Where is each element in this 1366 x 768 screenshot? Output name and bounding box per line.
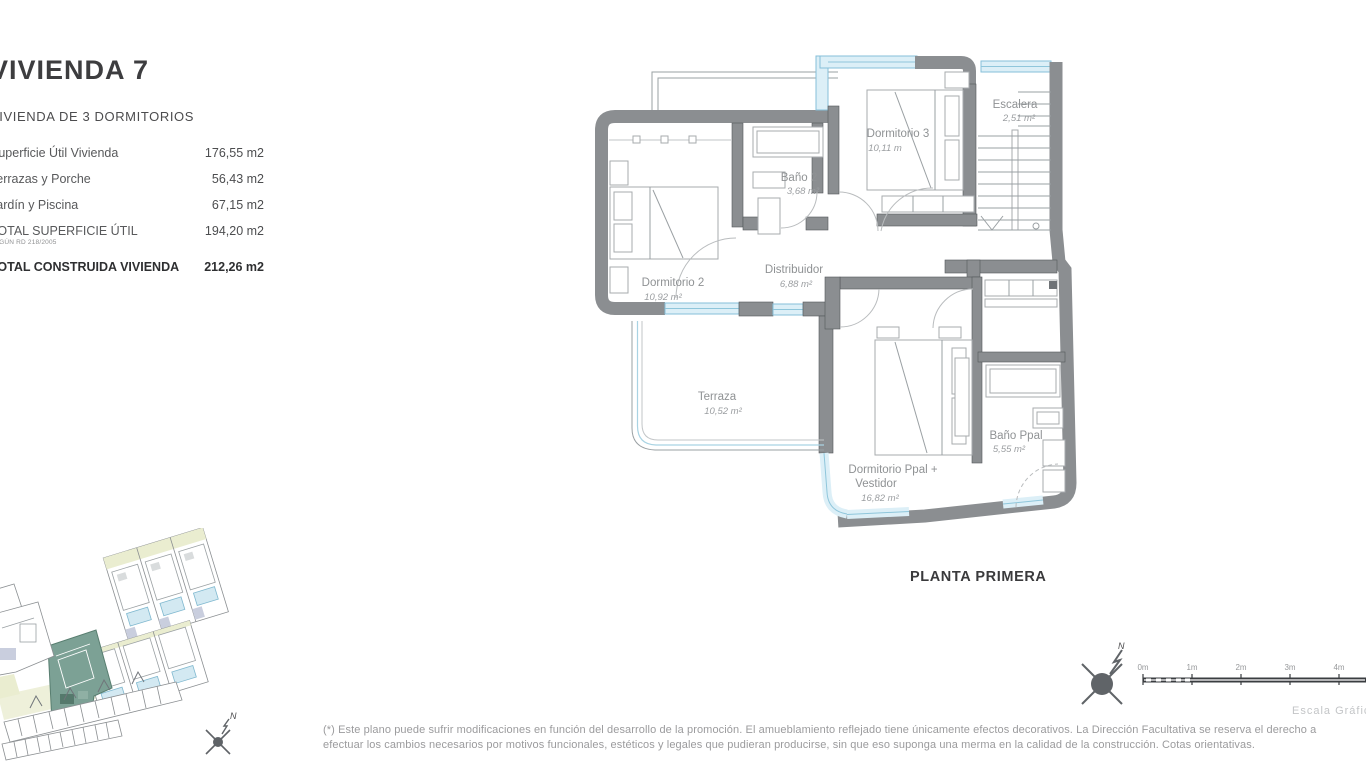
- footer-line-2: efectuar los cambios necesarios por moti…: [323, 738, 1366, 753]
- room-label-bano-ppal: Baño Ppal: [989, 430, 1042, 442]
- site-left-units: [0, 584, 54, 676]
- north-compass-icon: N: [1082, 641, 1125, 704]
- compass-and-scale: N 0m 1m 2m 3m 4m Escala Gráfica: [1070, 638, 1366, 733]
- vestidor-closet: [985, 280, 1057, 307]
- scale-tick-0: 0m: [1137, 663, 1148, 672]
- terraza-balustrade: [632, 321, 824, 450]
- room-label-distribuidor: Distribuidor: [765, 264, 823, 276]
- site-plan: N: [0, 528, 239, 768]
- scale-tick-4: 4m: [1333, 663, 1344, 672]
- scale-bar: 0m 1m 2m 3m 4m Escala Gráfica: [1137, 663, 1366, 717]
- room-label-terraza: Terraza: [698, 391, 737, 403]
- page-subtitle: VIVIENDA DE 3 DORMITORIOS: [0, 109, 194, 124]
- door-arcs: [676, 188, 1058, 507]
- room-area-dormitorio-ppal: 16,82 m²: [861, 493, 899, 504]
- page: { "info_panel": { "title": "VIVIENDA 7",…: [0, 0, 1366, 768]
- scale-caption: Escala Gráfica: [1292, 705, 1366, 717]
- footer-disclaimer: (*) Este plano puede sufrir modificacion…: [323, 723, 1366, 752]
- terrace-row: Terrazas y Porche 56,43 m2: [0, 172, 264, 186]
- compass-north-label: N: [1118, 641, 1125, 651]
- bed-dormitorio-ppal: [875, 327, 972, 455]
- site-north-icon: N: [206, 711, 237, 754]
- bed-dormitorio-3: [867, 72, 974, 212]
- room-area-bano-2: 3,68 m²: [787, 186, 820, 197]
- total-built-value: 212,26 m2: [204, 260, 264, 274]
- total-util-row: TOTAL SUPERFICIE ÚTIL 194,20 m2: [0, 224, 264, 238]
- scale-tick-3: 3m: [1284, 663, 1295, 672]
- room-label-dormitorio-ppal: Dormitorio Ppal +: [848, 464, 937, 476]
- surface-row-value: 176,55 m2: [205, 146, 264, 160]
- total-util-note: SEGÚN RD 218/2005: [0, 239, 57, 246]
- scale-tick-1: 1m: [1186, 663, 1197, 672]
- room-label-bano-2: Baño 2: [781, 172, 817, 184]
- surface-row-label: Superficie Útil Vivienda: [0, 146, 118, 160]
- page-title: VIVIENDA 7: [0, 55, 149, 86]
- room-area-terraza: 10,52 m²: [704, 406, 742, 417]
- total-built-row: TOTAL CONSTRUIDA VIVIENDA 212,26 m2: [0, 260, 264, 274]
- room-label-dormitorio-3: Dormitorio 3: [867, 128, 930, 140]
- room-area-dormitorio-3: 10,11 m: [868, 143, 902, 154]
- room-area-bano-ppal: 5,55 m²: [993, 444, 1026, 455]
- site-north-label: N: [230, 711, 237, 721]
- balcony-parapet: [652, 72, 838, 110]
- surface-row: Superficie Útil Vivienda 176,55 m2: [0, 146, 264, 160]
- room-area-distribuidor: 6,88 m²: [780, 279, 813, 290]
- terrace-row-label: Terrazas y Porche: [0, 172, 91, 186]
- site-upper-units: [103, 528, 228, 642]
- garden-row: Jardín y Piscina 67,15 m2: [0, 198, 264, 212]
- floor-plan: Dormitorio 2 10,92 m² Baño 2 3,68 m² Dor…: [595, 40, 1107, 537]
- total-util-value: 194,20 m2: [205, 224, 264, 238]
- room-label-dormitorio-ppal-2: Vestidor: [855, 478, 897, 490]
- terrace-row-value: 56,43 m2: [212, 172, 264, 186]
- bed-dormitorio-2: [609, 136, 731, 293]
- garden-row-label: Jardín y Piscina: [0, 198, 78, 212]
- room-area-dormitorio-2: 10,92 m²: [644, 292, 682, 303]
- plan-caption: PLANTA PRIMERA: [910, 569, 1046, 585]
- room-area-escalera: 2,51 m²: [1002, 113, 1036, 124]
- total-util-label: TOTAL SUPERFICIE ÚTIL: [0, 224, 138, 238]
- room-label-escalera: Escalera: [993, 99, 1038, 111]
- total-built-label: TOTAL CONSTRUIDA VIVIENDA: [0, 260, 179, 274]
- garden-row-value: 67,15 m2: [212, 198, 264, 212]
- footer-line-1: (*) Este plano puede sufrir modificacion…: [323, 723, 1366, 738]
- scale-tick-2: 2m: [1235, 663, 1246, 672]
- room-label-dormitorio-2: Dormitorio 2: [642, 277, 705, 289]
- fixtures-bano-ppal: [986, 365, 1065, 492]
